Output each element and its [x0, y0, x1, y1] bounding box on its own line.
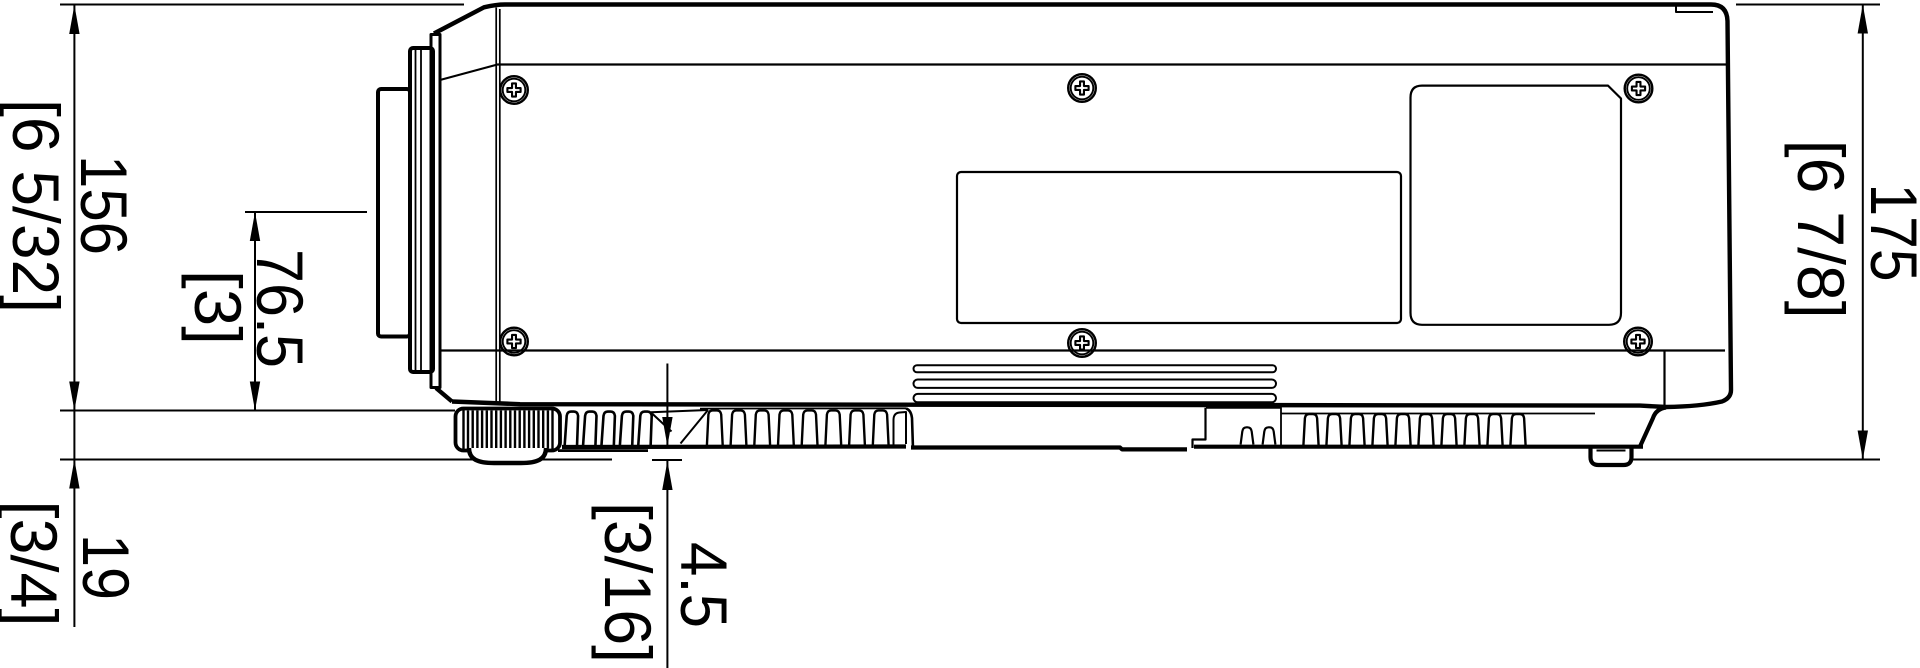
svg-text:[3]: [3] — [181, 270, 255, 345]
svg-text:[6 5/32]: [6 5/32] — [0, 99, 73, 313]
svg-text:[3/16]: [3/16] — [591, 502, 665, 663]
svg-text:156: 156 — [67, 155, 141, 255]
svg-text:[6 7/8]: [6 7/8] — [1784, 140, 1858, 319]
svg-text:175: 175 — [1857, 184, 1920, 282]
svg-text:19: 19 — [69, 534, 143, 600]
svg-text:4.5: 4.5 — [667, 542, 741, 628]
svg-text:[3/4]: [3/4] — [0, 501, 71, 627]
